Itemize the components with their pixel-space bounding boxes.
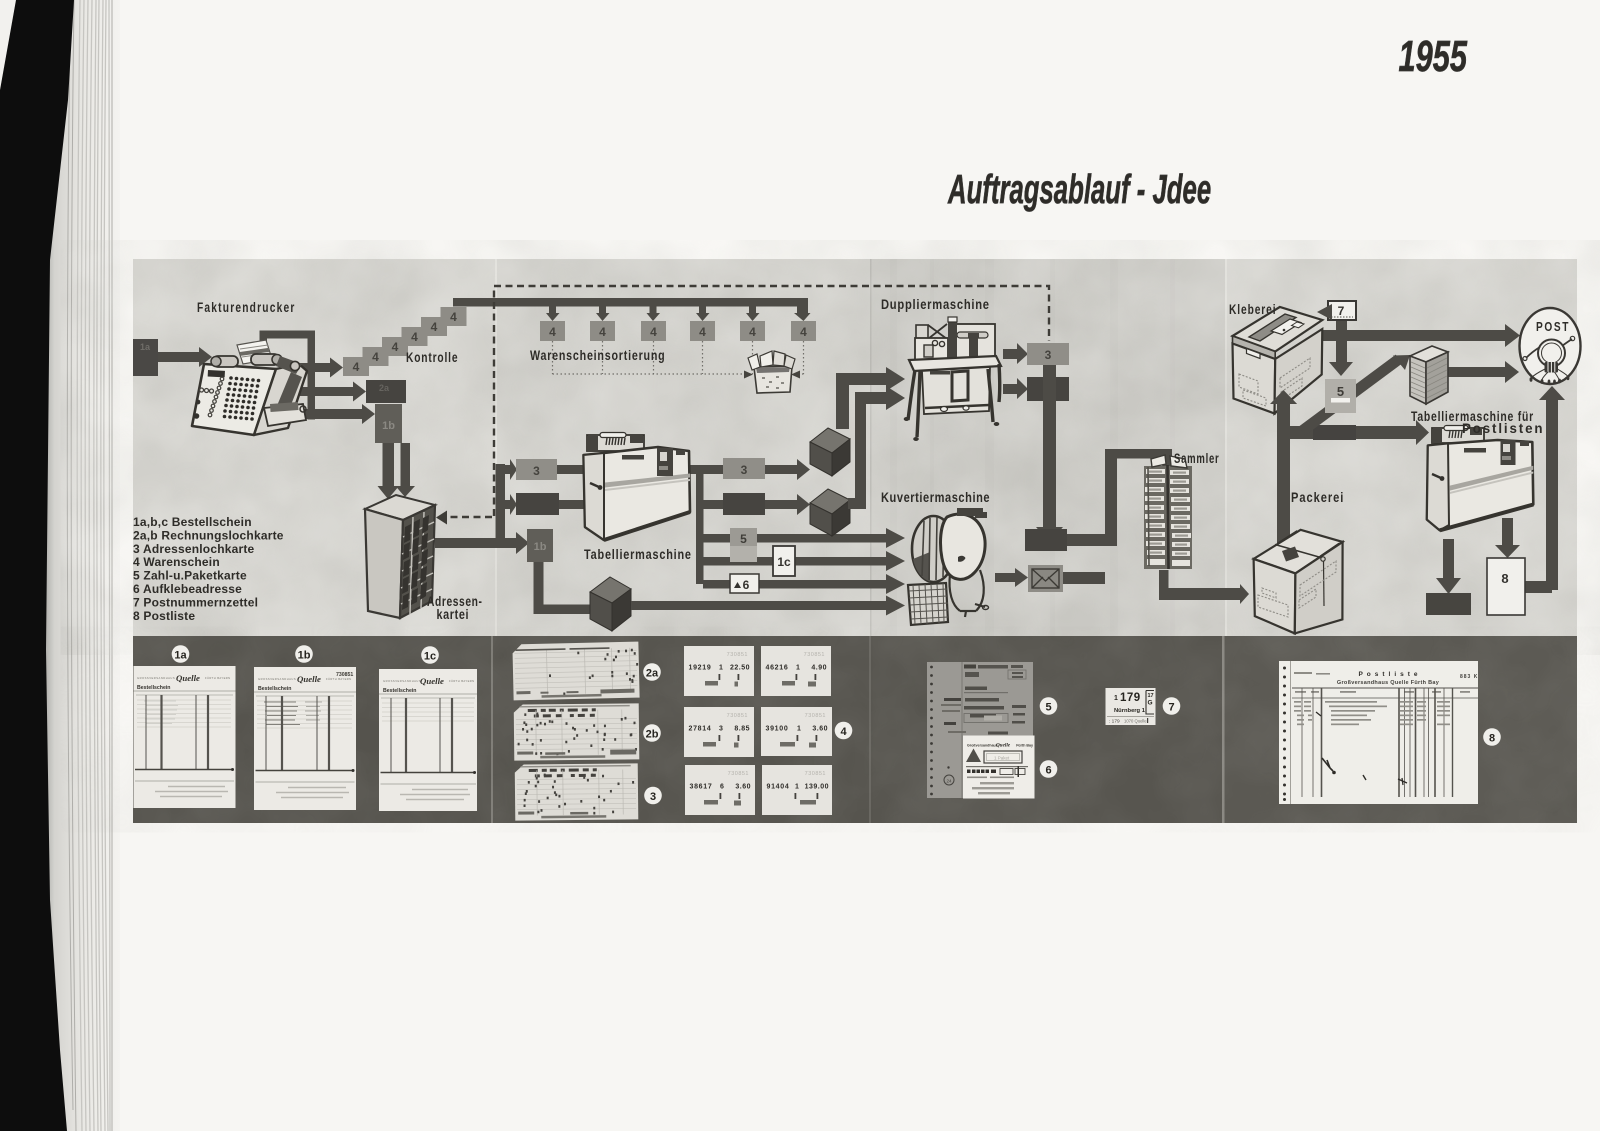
svg-text:730851: 730851 [336, 672, 353, 678]
svg-text:GROSSVERSANDHAUS: GROSSVERSANDHAUS [258, 677, 296, 681]
svg-text:Quelle: Quelle [420, 676, 444, 686]
svg-text:3: 3 [1045, 348, 1052, 362]
svg-text:3.60: 3.60 [735, 784, 751, 791]
svg-text:6: 6 [720, 784, 724, 791]
svg-text:Kontrolle: Kontrolle [406, 350, 458, 366]
svg-text:4: 4 [549, 325, 556, 339]
svg-text:3: 3 [719, 726, 723, 733]
svg-text:4: 4 [800, 325, 807, 339]
svg-text:5: 5 [740, 532, 747, 546]
svg-text:3: 3 [650, 791, 656, 803]
svg-text:Fakturendrucker: Fakturendrucker [197, 300, 296, 316]
svg-text:Auftragsablauf - Jdee: Auftragsablauf - Jdee [947, 167, 1211, 213]
svg-text:24: 24 [946, 779, 952, 784]
svg-text:8 Postliste: 8 Postliste [133, 609, 195, 623]
svg-text:Tabelliermaschine: Tabelliermaschine [584, 547, 692, 562]
svg-text:730851: 730851 [727, 713, 748, 719]
svg-text:Duppliermaschine: Duppliermaschine [881, 297, 990, 312]
svg-text:883 K: 883 K [1460, 674, 1478, 680]
svg-text:179: 179 [1120, 692, 1141, 704]
svg-text:Großversandhaus Quelle Fürth B: Großversandhaus Quelle Fürth Bay [1337, 680, 1440, 686]
svg-text:91404: 91404 [767, 784, 790, 791]
svg-text:730851: 730851 [727, 652, 748, 658]
svg-text:2a: 2a [646, 668, 659, 680]
svg-text:4: 4 [411, 330, 418, 344]
svg-text:46216: 46216 [766, 665, 789, 672]
svg-text:1b: 1b [298, 650, 311, 662]
svg-text:4: 4 [353, 360, 360, 374]
svg-text:1b: 1b [534, 541, 547, 553]
svg-text:3: 3 [741, 463, 748, 477]
svg-text:19219: 19219 [689, 665, 712, 672]
svg-text:4: 4 [431, 320, 438, 334]
svg-text:Postlisten: Postlisten [1462, 421, 1544, 436]
svg-text:5: 5 [1337, 384, 1344, 399]
svg-text:3: 3 [533, 464, 540, 478]
svg-text:139.00: 139.00 [805, 784, 829, 791]
svg-text:1b: 1b [382, 420, 395, 432]
svg-text:Großversandhaus: Großversandhaus [967, 744, 998, 748]
svg-text:1c: 1c [777, 555, 791, 569]
svg-text:2a,b Rechnungslochkarte: 2a,b Rechnungslochkarte [133, 528, 284, 542]
svg-text:1: 1 [796, 665, 800, 672]
svg-text:1c: 1c [424, 651, 436, 663]
svg-text:4 Warenschein: 4 Warenschein [133, 555, 220, 569]
svg-text:2b: 2b [646, 729, 659, 741]
svg-text:1: 1 [795, 784, 799, 791]
svg-text:Packerei: Packerei [1291, 490, 1344, 505]
svg-text:6: 6 [743, 578, 750, 592]
svg-text:17: 17 [1148, 693, 1154, 699]
svg-text:: 179: : 179 [1109, 719, 1120, 725]
svg-text:Warenscheinsortierung: Warenscheinsortierung [530, 348, 665, 364]
svg-text:1a: 1a [140, 342, 151, 352]
svg-text:1: 1 [797, 726, 801, 733]
svg-text:7: 7 [1338, 304, 1345, 318]
svg-text:4: 4 [699, 325, 706, 339]
svg-text:Quelle: Quelle [996, 743, 1011, 749]
svg-text:8: 8 [1501, 571, 1508, 586]
svg-text:5: 5 [1045, 702, 1051, 714]
svg-text:4: 4 [650, 325, 657, 339]
svg-text:Sammler: Sammler [1174, 451, 1220, 466]
svg-text:4.90: 4.90 [811, 665, 827, 672]
svg-text:GROSSVERSANDHAUS: GROSSVERSANDHAUS [383, 679, 421, 683]
svg-text:730851: 730851 [804, 652, 825, 658]
svg-text:Fürth Bay: Fürth Bay [1016, 744, 1033, 748]
svg-text:3 Adressenlochkarte: 3 Adressenlochkarte [133, 542, 255, 556]
svg-text:Bestellschein: Bestellschein [258, 686, 291, 692]
svg-text:4: 4 [450, 310, 457, 324]
svg-text:7: 7 [1168, 702, 1174, 714]
svg-text:6 Aufklebeadresse: 6 Aufklebeadresse [133, 582, 242, 596]
svg-text:730851: 730851 [805, 771, 826, 777]
svg-text:FÜRTH BAYERN: FÜRTH BAYERN [449, 679, 474, 683]
svg-text:GROSSVERSANDHAUS: GROSSVERSANDHAUS [137, 676, 175, 680]
svg-text:4: 4 [392, 340, 399, 354]
svg-text:1955: 1955 [1398, 33, 1467, 82]
svg-text:Bestellschein: Bestellschein [383, 688, 416, 694]
svg-text:27814: 27814 [689, 726, 712, 733]
svg-text:22.50: 22.50 [730, 665, 750, 672]
svg-text:730851: 730851 [805, 713, 826, 719]
svg-text:1: 1 [719, 665, 723, 672]
svg-text:POST: POST [1536, 321, 1570, 334]
svg-text:Kuvertiermaschine: Kuvertiermaschine [881, 490, 990, 505]
svg-text:3.60: 3.60 [812, 726, 828, 733]
svg-text:4: 4 [599, 325, 606, 339]
svg-text:FÜRTH BAYERN: FÜRTH BAYERN [205, 676, 230, 680]
svg-text:1a,b,c Bestellschein: 1a,b,c Bestellschein [133, 515, 252, 529]
svg-text:Kleberei: Kleberei [1229, 302, 1276, 318]
svg-text:8: 8 [1489, 733, 1495, 745]
svg-text:6: 6 [1045, 765, 1051, 777]
svg-text:Quelle: Quelle [297, 674, 321, 684]
svg-text:8.85: 8.85 [734, 726, 750, 733]
svg-text:2a: 2a [379, 383, 390, 393]
svg-text:1a: 1a [174, 650, 187, 662]
svg-text:Postliste: Postliste [1358, 671, 1421, 678]
svg-text:4: 4 [749, 325, 756, 339]
svg-text:39100: 39100 [766, 726, 789, 733]
svg-text:G: G [1148, 700, 1153, 707]
svg-text:Bestellschein: Bestellschein [137, 685, 170, 691]
svg-text:1: 1 [1114, 695, 1118, 702]
svg-text:1070 Quelle: 1070 Quelle [1124, 719, 1147, 724]
svg-text:kartei: kartei [437, 607, 470, 622]
svg-text:Quelle: Quelle [176, 673, 200, 683]
svg-text:7 Postnummernzettel: 7 Postnummernzettel [133, 595, 258, 609]
svg-text:730851: 730851 [728, 771, 749, 777]
svg-text:38617: 38617 [690, 784, 713, 791]
svg-text:4: 4 [372, 350, 379, 364]
svg-text:1 Paket: 1 Paket [994, 756, 1010, 761]
svg-text:5 Zahl-u.Paketkarte: 5 Zahl-u.Paketkarte [133, 569, 247, 583]
svg-text:Nürnberg 1: Nürnberg 1 [1114, 708, 1146, 714]
svg-text:4: 4 [840, 726, 847, 738]
